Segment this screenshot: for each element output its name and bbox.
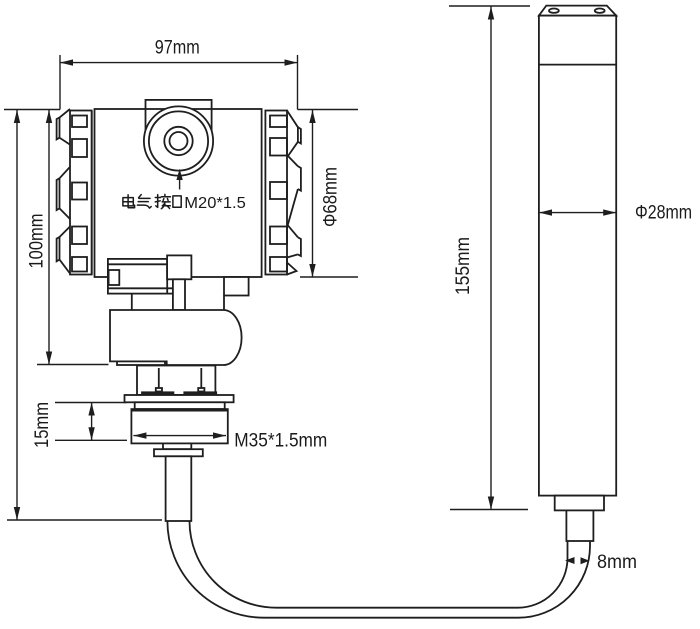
svg-text:100mm: 100mm xyxy=(27,214,48,269)
svg-text:Φ68mm: Φ68mm xyxy=(321,167,342,227)
svg-text:M35*1.5mm: M35*1.5mm xyxy=(234,431,327,452)
svg-text:Φ28mm: Φ28mm xyxy=(635,203,692,224)
svg-text:97mm: 97mm xyxy=(155,38,200,59)
svg-text:155mm: 155mm xyxy=(453,237,474,295)
svg-text:15mm: 15mm xyxy=(32,402,53,448)
svg-text:M20*1.5: M20*1.5 xyxy=(184,195,246,212)
svg-text:8mm: 8mm xyxy=(597,552,637,573)
